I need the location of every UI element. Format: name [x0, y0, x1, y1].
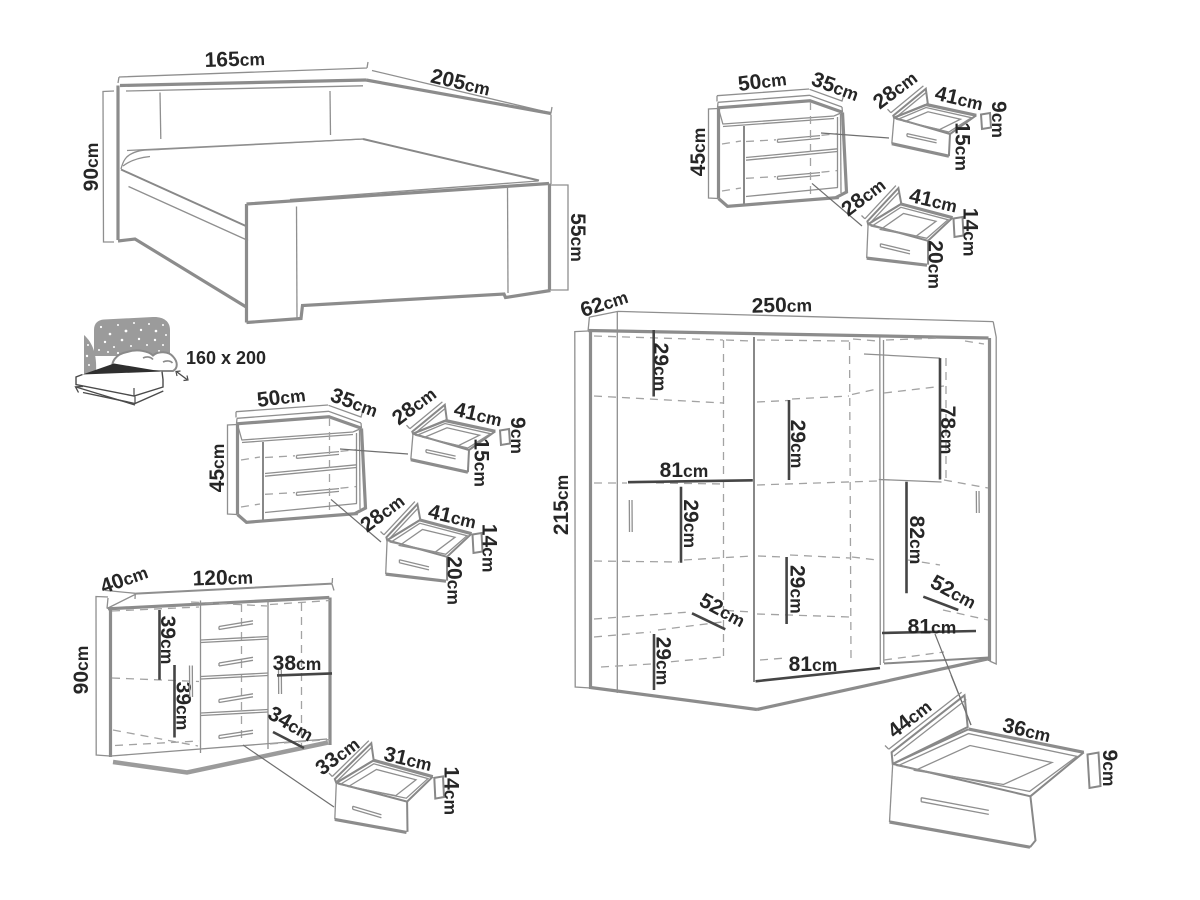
svg-text:39cm: 39cm	[171, 682, 194, 731]
svg-text:20cm: 20cm	[923, 240, 946, 289]
svg-text:82cm: 82cm	[905, 516, 928, 565]
svg-text:81cm: 81cm	[908, 616, 957, 639]
svg-text:14cm: 14cm	[959, 208, 982, 257]
svg-text:29cm: 29cm	[785, 565, 808, 614]
svg-text:14cm: 14cm	[439, 766, 462, 815]
svg-text:29cm: 29cm	[652, 637, 675, 686]
svg-text:250cm: 250cm	[751, 293, 812, 318]
svg-text:45cm: 45cm	[687, 128, 710, 177]
svg-text:81cm: 81cm	[660, 459, 709, 482]
svg-text:29cm: 29cm	[786, 420, 809, 469]
svg-text:120cm: 120cm	[192, 565, 253, 590]
svg-text:15cm: 15cm	[951, 122, 974, 171]
svg-text:55cm: 55cm	[566, 213, 589, 262]
svg-text:81cm: 81cm	[789, 653, 838, 676]
svg-text:39cm: 39cm	[156, 616, 179, 665]
svg-text:9cm: 9cm	[1098, 750, 1121, 787]
svg-text:90cm: 90cm	[80, 143, 103, 192]
svg-text:160 x 200: 160 x 200	[186, 348, 266, 368]
svg-text:165cm: 165cm	[204, 47, 265, 72]
svg-text:29cm: 29cm	[679, 499, 702, 548]
svg-text:215cm: 215cm	[550, 475, 573, 535]
svg-text:78cm: 78cm	[936, 406, 959, 455]
svg-text:9cm: 9cm	[987, 101, 1010, 138]
svg-text:90cm: 90cm	[70, 646, 93, 695]
svg-text:29cm: 29cm	[649, 343, 672, 392]
svg-text:38cm: 38cm	[273, 652, 322, 675]
